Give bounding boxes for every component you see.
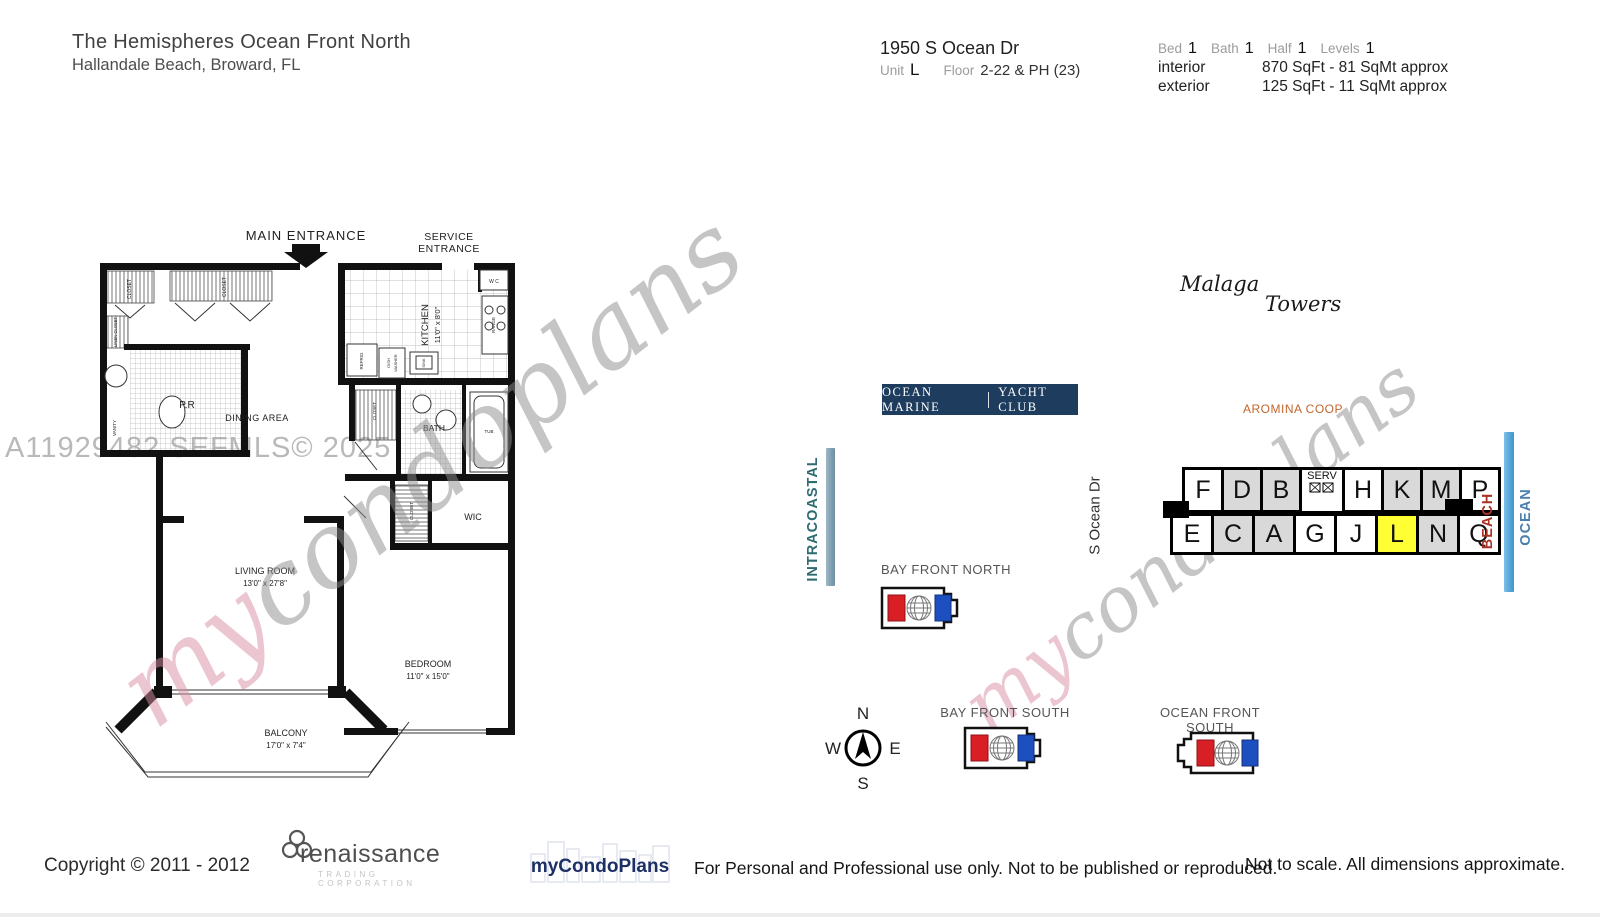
unit-cell-L-highlighted: L (1375, 513, 1419, 555)
closet-label-2: CLOSET (222, 277, 228, 297)
bay-front-south-label: BAY FRONT SOUTH (940, 705, 1070, 720)
dishwasher-label-1: DISH (386, 358, 391, 368)
yacht-club-right-text: YACHT CLUB (998, 385, 1078, 415)
interior-label: interior (1158, 59, 1262, 77)
levels-value: 1 (1366, 40, 1375, 58)
compass-e: E (889, 739, 900, 758)
bay-front-south-icon (955, 722, 1055, 774)
wic-closet-label: CLOSET (409, 502, 414, 520)
unit-cell-D: D (1221, 467, 1263, 513)
floorplan-sheet: The Hemispheres Ocean Front North Hallan… (0, 0, 1600, 922)
half-value: 1 (1298, 40, 1307, 58)
mycondoplans-logo: myCondoPlans (525, 834, 675, 884)
bath-label: BATH (423, 423, 445, 433)
service-entrance-label-1: SERVICE (424, 231, 473, 243)
vanity-label: VANITY (112, 420, 117, 436)
interior-row: interior 870 SqFt - 81 SqMt approx (1158, 59, 1448, 77)
unit-cell-N: N (1416, 513, 1460, 555)
ocean-marine-yacht-club-sign: OCEAN MARINE YACHT CLUB (882, 384, 1078, 415)
unit-cell-B: B (1260, 467, 1302, 513)
unit-cell-E: E (1170, 513, 1214, 555)
wc-label: W C (489, 279, 499, 285)
unit-label: Unit (880, 63, 904, 78)
unit-cell-H: H (1342, 467, 1384, 513)
mycondoplans-text: myCondoPlans (525, 856, 675, 878)
floor-label: Floor (943, 63, 974, 78)
sink-label: SINK (421, 358, 426, 368)
aromina-coop-label: AROMINA COOP (1243, 402, 1343, 416)
compass-w: W (825, 739, 841, 758)
bed-label: Bed (1158, 41, 1182, 56)
ocean-label: OCEAN (1518, 487, 1534, 547)
intracoastal-water-bar (826, 448, 835, 586)
intracoastal-label: INTRACOASTAL (805, 454, 821, 584)
compass-icon: N W E S (822, 700, 906, 792)
balcony-wall-left (118, 692, 156, 730)
exterior-label: exterior (1158, 78, 1262, 96)
interior-value: 870 SqFt - 81 SqMt approx (1262, 59, 1448, 77)
renaissance-subtitle: TRADING CORPORATION (318, 870, 438, 888)
address: 1950 S Ocean Dr (880, 38, 1019, 59)
yacht-club-divider (988, 392, 989, 408)
malaga-label: Malaga (1180, 272, 1259, 296)
page-subtitle: Hallandale Beach, Broward, FL (72, 56, 300, 75)
unit-cell-A: A (1252, 513, 1296, 555)
range-label: RANGE (491, 317, 496, 333)
copyright-text: Copyright © 2011 - 2012 (44, 855, 250, 877)
unit-cell-G: G (1293, 513, 1337, 555)
unit-cell-K: K (1381, 467, 1423, 513)
bath-value: 1 (1245, 40, 1254, 58)
service-entrance-label-2: ENTRANCE (418, 243, 480, 255)
living-label: LIVING ROOM (235, 566, 295, 576)
wic-label: WIC (464, 512, 482, 522)
stair-block-right (1445, 499, 1473, 516)
bed-bath-row: Bed 1 Bath 1 Half 1 Levels 1 (1158, 40, 1374, 58)
yacht-club-left-text: OCEAN MARINE (882, 385, 979, 415)
building-unit-map: F D B SERV H K M P E C A G J L (1163, 455, 1473, 555)
renaissance-name: renaissance (300, 840, 440, 869)
powder-room-label: P.R (179, 400, 194, 411)
half-label: Half (1268, 41, 1292, 56)
beach-label: BEACH (1480, 491, 1496, 551)
towers-label: Towers (1265, 292, 1341, 316)
balcony-label: BALCONY (264, 728, 307, 738)
unit-cell-J: J (1334, 513, 1378, 555)
elevator-icon (1309, 482, 1335, 494)
closet-label-1: CLOSET (127, 279, 133, 299)
bath-label: Bath (1211, 41, 1239, 56)
levels-label: Levels (1321, 41, 1360, 56)
renaissance-logo: renaissance TRADING CORPORATION (278, 828, 438, 880)
compass-s: S (857, 774, 868, 792)
refrig-label: REFRIG (359, 352, 364, 370)
balcony-dim: 17'0" x 7'4" (266, 741, 306, 750)
serv-label: SERV (1307, 471, 1337, 482)
bedroom-dim: 11'0" x 15'0" (406, 672, 449, 681)
balcony-wall-right (346, 692, 384, 730)
dining-label: DINING AREA (225, 413, 289, 423)
floor-value: 2-22 & PH (23) (980, 62, 1080, 79)
exterior-row: exterior 125 SqFt - 11 SqMt approx (1158, 78, 1447, 96)
usage-text: For Personal and Professional use only. … (694, 858, 1277, 879)
exterior-value: 125 SqFt - 11 SqMt approx (1262, 78, 1447, 96)
page-title: The Hemispheres Ocean Front North (72, 31, 411, 54)
disclaimer-text: Not to scale. All dimensions approximate… (1245, 854, 1565, 875)
unit-floor-row: Unit L Floor 2-22 & PH (23) (880, 60, 1080, 80)
bath-closet-label: CLOSET (372, 402, 377, 420)
floorplan-drawing: MAIN ENTRANCE SERVICE ENTRANCE (90, 228, 530, 808)
dishwasher-label-2: WASHER (393, 354, 398, 372)
main-entrance-label: MAIN ENTRANCE (246, 228, 367, 243)
ocean-water-bar (1504, 432, 1514, 592)
unit-cell-SERV: SERV (1299, 467, 1345, 514)
kitchen-label: KITCHEN (420, 304, 431, 346)
unit-cell-C: C (1211, 513, 1255, 555)
living-dim: 13'0" x 27'8" (243, 579, 287, 588)
bottom-divider (0, 913, 1600, 917)
bed-value: 1 (1188, 40, 1197, 58)
bedroom-label: BEDROOM (405, 659, 452, 669)
unit-value: L (910, 60, 919, 80)
tub-label: TUB (485, 429, 494, 434)
s-ocean-dr-label: S Ocean Dr (1087, 471, 1104, 561)
bay-front-north-icon (872, 582, 972, 634)
kitchen-dim: 11'0" x 8'0" (433, 306, 442, 343)
linen-closet-label: LINEN CLOSET (113, 316, 118, 347)
bay-front-north-label: BAY FRONT NORTH (876, 562, 1016, 577)
compass-n: N (857, 704, 869, 723)
stair-block-left (1163, 501, 1189, 518)
ocean-front-south-icon (1158, 726, 1263, 780)
unit-row-bottom: E C A G J L N Q (1173, 513, 1501, 555)
